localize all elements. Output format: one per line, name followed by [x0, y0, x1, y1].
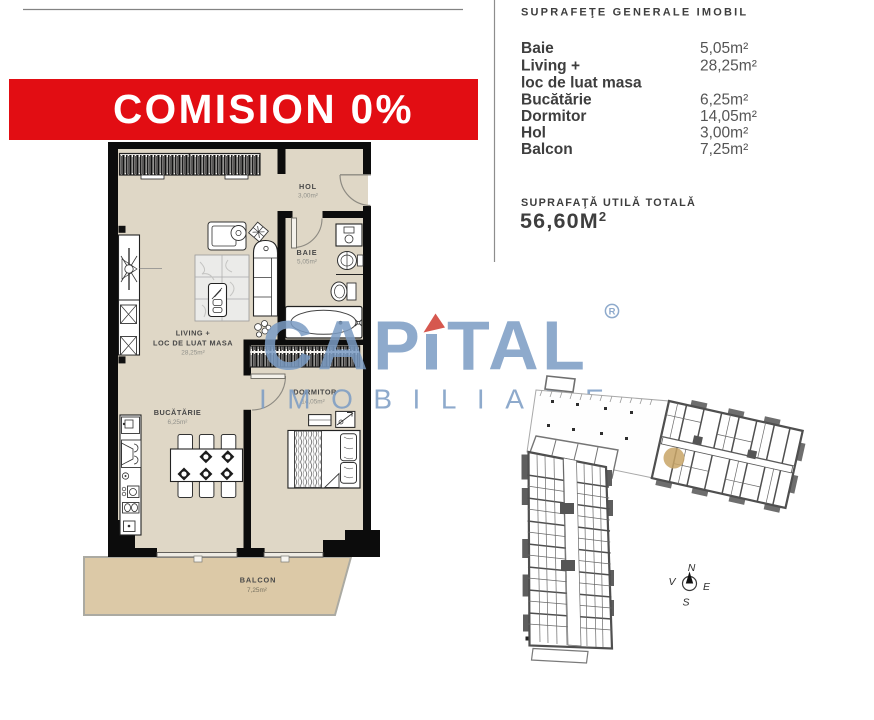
svg-text:SUPRAFAŢĂ UTILĂ TOTALĂ: SUPRAFAŢĂ UTILĂ TOTALĂ — [521, 196, 696, 209]
svg-text:SUPRAFEŢE GENERALE IMOBIL: SUPRAFEŢE GENERALE IMOBIL — [521, 7, 748, 19]
svg-text:5,05m²: 5,05m² — [700, 40, 748, 57]
svg-text:BUCĂTĂRIE: BUCĂTĂRIE — [154, 408, 201, 417]
svg-text:Dormitor: Dormitor — [521, 108, 586, 125]
svg-text:7,25m²: 7,25m² — [700, 141, 748, 158]
svg-text:LIVING +: LIVING + — [176, 329, 211, 338]
svg-text:6,25m²: 6,25m² — [700, 92, 748, 109]
svg-text:28,25m²: 28,25m² — [181, 350, 204, 357]
svg-text:N: N — [688, 562, 696, 574]
svg-text:E: E — [703, 581, 711, 593]
svg-text:14,05m²: 14,05m² — [700, 108, 757, 125]
svg-text:BALCON: BALCON — [240, 576, 277, 585]
svg-text:Hol: Hol — [521, 125, 546, 142]
svg-text:V: V — [668, 576, 676, 588]
svg-text:Baie: Baie — [521, 40, 554, 57]
svg-text:R: R — [609, 307, 616, 318]
svg-text:3,00m²: 3,00m² — [700, 125, 748, 142]
svg-text:6,25m²: 6,25m² — [168, 419, 188, 426]
svg-text:LOC DE LUAT MASA: LOC DE LUAT MASA — [153, 339, 233, 348]
svg-text:28,25m²: 28,25m² — [700, 58, 757, 75]
svg-text:COMISION 0%: COMISION 0% — [113, 86, 414, 132]
svg-text:S: S — [682, 597, 689, 609]
svg-text:Bucătărie: Bucătărie — [521, 92, 592, 109]
svg-text:BAIE: BAIE — [296, 248, 317, 257]
svg-text:Balcon: Balcon — [521, 141, 573, 158]
svg-text:7,25m²: 7,25m² — [247, 587, 267, 594]
svg-text:TAL: TAL — [447, 307, 588, 385]
svg-text:CAP: CAP — [262, 307, 425, 385]
svg-text:Living +: Living + — [521, 58, 580, 75]
svg-text:HOL: HOL — [299, 182, 317, 191]
svg-text:5,05m²: 5,05m² — [297, 259, 317, 266]
svg-text:loc de luat masa: loc de luat masa — [521, 75, 642, 92]
svg-text:3,00m²: 3,00m² — [298, 193, 318, 200]
svg-text:56,60M2: 56,60M2 — [520, 209, 607, 233]
